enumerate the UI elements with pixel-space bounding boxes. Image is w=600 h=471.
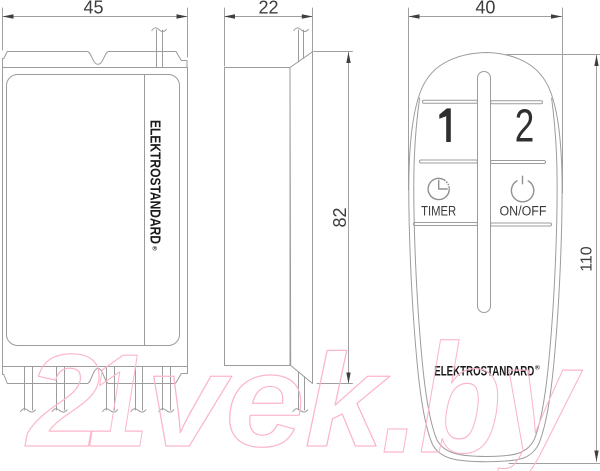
- svg-text:vek: vek: [146, 327, 390, 471]
- svg-text:ON/OFF: ON/OFF: [500, 204, 547, 219]
- svg-text:82: 82: [330, 207, 350, 227]
- svg-text:40: 40: [475, 0, 495, 18]
- svg-text:110: 110: [579, 246, 596, 272]
- svg-text:22: 22: [258, 0, 278, 18]
- svg-text:TIMER: TIMER: [421, 204, 456, 219]
- svg-text:45: 45: [83, 0, 103, 18]
- svg-text:1: 1: [88, 327, 148, 471]
- svg-text:ELEKTROSTANDARD: ELEKTROSTANDARD: [147, 120, 164, 244]
- svg-text:®: ®: [151, 246, 159, 251]
- svg-text:.by: .by: [381, 312, 583, 471]
- svg-text:2: 2: [515, 100, 535, 152]
